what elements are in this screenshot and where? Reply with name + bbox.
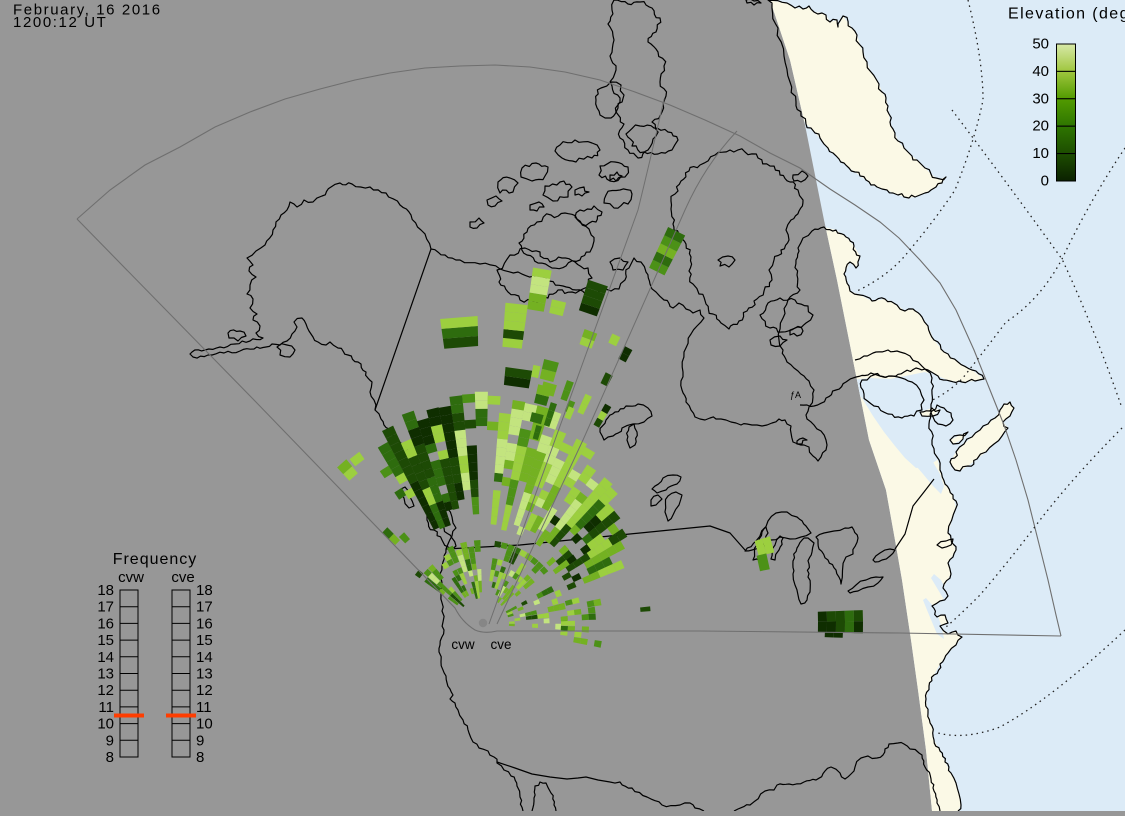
svg-text:20: 20 [1032, 118, 1049, 135]
svg-text:10: 10 [196, 716, 213, 733]
svg-text:8: 8 [106, 749, 114, 766]
svg-text:cve: cve [171, 569, 194, 586]
svg-text:10: 10 [97, 716, 114, 733]
svg-text:cvw: cvw [118, 569, 144, 586]
svg-text:17: 17 [196, 599, 213, 616]
svg-text:18: 18 [196, 582, 213, 599]
svg-text:Frequency: Frequency [113, 551, 198, 568]
svg-text:11: 11 [196, 699, 212, 716]
svg-text:15: 15 [97, 632, 114, 649]
svg-text:ƒA: ƒA [790, 390, 801, 400]
svg-text:Elevation (deg): Elevation (deg) [1008, 6, 1125, 23]
svg-text:40: 40 [1032, 63, 1049, 80]
svg-text:1200:12 UT: 1200:12 UT [13, 14, 107, 31]
svg-text:17: 17 [97, 599, 114, 616]
svg-text:10: 10 [1032, 145, 1049, 162]
svg-text:14: 14 [97, 649, 114, 666]
svg-text:30: 30 [1032, 90, 1049, 107]
svg-text:cvw: cvw [451, 637, 475, 652]
svg-text:50: 50 [1032, 36, 1049, 53]
svg-text:12: 12 [196, 682, 213, 699]
svg-text:11: 11 [98, 699, 114, 716]
svg-text:14: 14 [196, 649, 213, 666]
svg-text:9: 9 [196, 732, 204, 749]
svg-text:0: 0 [1041, 173, 1049, 190]
svg-text:13: 13 [97, 666, 114, 683]
svg-text:9: 9 [106, 732, 114, 749]
svg-text:16: 16 [196, 615, 213, 632]
svg-text:18: 18 [97, 582, 114, 599]
svg-text:cve: cve [490, 637, 511, 652]
svg-text:13: 13 [196, 666, 213, 683]
svg-text:12: 12 [97, 682, 114, 699]
svg-text:16: 16 [97, 615, 114, 632]
svg-text:8: 8 [196, 749, 204, 766]
svg-text:15: 15 [196, 632, 213, 649]
